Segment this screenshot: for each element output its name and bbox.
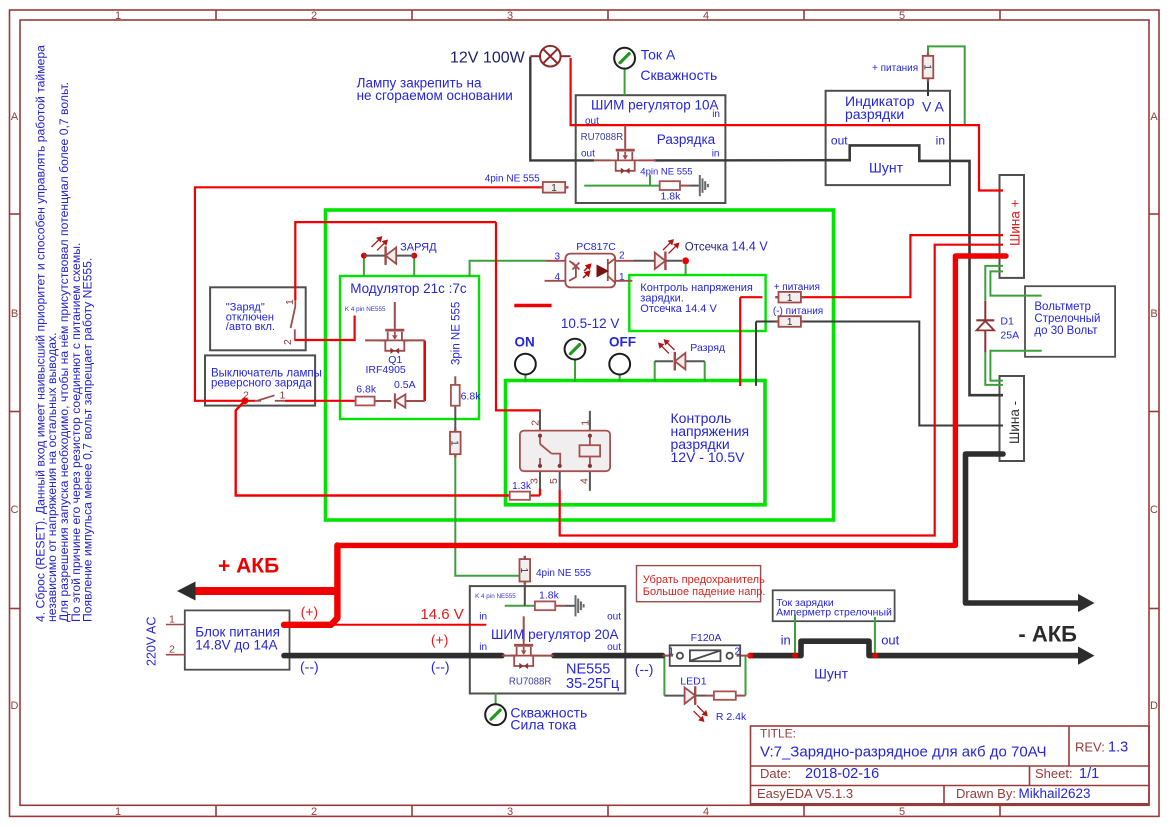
svg-text:Модулятор 21c :7c: Модулятор 21c :7c [350, 281, 467, 296]
svg-text:F120A: F120A [691, 632, 722, 644]
svg-text:12V 100W: 12V 100W [450, 50, 526, 67]
svg-text:in: in [479, 612, 487, 623]
svg-text:2: 2 [169, 644, 175, 656]
svg-text:реверсного заряда: реверсного заряда [211, 378, 312, 390]
svg-text:4pin NE 555: 4pin NE 555 [640, 166, 692, 177]
svg-text:12V - 10.5V: 12V - 10.5V [671, 449, 746, 465]
svg-text:V:7_Зарядно-разрядное для акб: V:7_Зарядно-разрядное для акб до 70АЧ [760, 743, 1047, 760]
svg-text:+ питания: + питания [774, 282, 820, 293]
svg-text:+ питания: + питания [872, 63, 918, 74]
svg-text:1: 1 [580, 420, 592, 426]
svg-text:TITLE:: TITLE: [760, 727, 796, 741]
svg-text:Ток А: Ток А [641, 47, 676, 63]
svg-text:D1: D1 [1000, 316, 1014, 328]
svg-text:25A: 25A [1000, 330, 1019, 342]
svg-text:3pin NE 555: 3pin NE 555 [450, 302, 462, 365]
svg-text:1.3k: 1.3k [512, 481, 532, 492]
svg-text:2: 2 [243, 389, 249, 401]
svg-text:ШИМ регулятор 10А: ШИМ регулятор 10А [591, 98, 718, 113]
svg-text:(-) питания: (-) питания [773, 306, 823, 317]
svg-text:1: 1 [169, 614, 175, 626]
svg-text:2: 2 [735, 646, 741, 657]
svg-text:4: 4 [555, 272, 561, 283]
svg-text:Шунт: Шунт [814, 665, 849, 681]
svg-text:(+): (+) [431, 632, 449, 648]
svg-text:Разрядка: Разрядка [657, 132, 716, 147]
svg-text:B: B [11, 308, 18, 320]
svg-text:1: 1 [619, 272, 625, 283]
svg-text:out: out [581, 149, 595, 160]
svg-text:B: B [1150, 308, 1157, 320]
svg-text:out: out [585, 116, 599, 127]
svg-text:Стрелочный: Стрелочный [1034, 313, 1100, 325]
svg-text:220V AC: 220V AC [145, 617, 159, 666]
svg-text:1.8k: 1.8k [661, 191, 682, 203]
svg-text:REV:: REV: [1075, 740, 1105, 755]
svg-text:in: in [781, 633, 791, 648]
svg-text:1: 1 [280, 389, 286, 401]
svg-text:Шина -: Шина - [1007, 401, 1022, 444]
svg-text:не сгораемом основании: не сгораемом основании [357, 88, 513, 103]
svg-text:ШИМ регулятор 20А: ШИМ регулятор 20А [491, 627, 618, 642]
svg-text:5: 5 [899, 806, 905, 818]
svg-text:Шунт: Шунт [869, 160, 904, 176]
svg-text:Отсечка 14.4 V: Отсечка 14.4 V [685, 240, 769, 254]
svg-text:Drawn By:: Drawn By: [956, 786, 1016, 801]
svg-text:Убрать предохранитель: Убрать предохранитель [643, 574, 765, 586]
svg-text:Date:: Date: [760, 766, 791, 781]
svg-text:6.8k: 6.8k [461, 390, 482, 402]
svg-text:C: C [11, 504, 19, 516]
svg-text:out: out [607, 642, 621, 653]
svg-text:OFF: OFF [609, 334, 636, 349]
svg-text:4pin NE 555: 4pin NE 555 [536, 568, 591, 579]
svg-text:K 4 pin NE555: K 4 pin NE555 [475, 593, 516, 600]
svg-text:in: in [479, 642, 487, 653]
svg-text:Появление импульса менее 0,7 в: Появление импульса менее 0,7 вольт запре… [81, 258, 95, 622]
svg-text:до 30 Вольт: до 30 Вольт [1034, 325, 1098, 337]
svg-text:R 2.4k: R 2.4k [716, 711, 747, 723]
svg-text:2018-02-16: 2018-02-16 [805, 766, 879, 782]
svg-text:2: 2 [530, 420, 542, 426]
svg-text:ON: ON [515, 334, 535, 349]
svg-text:K 4 pin NE555: K 4 pin NE555 [345, 306, 386, 313]
svg-text:3: 3 [507, 806, 513, 818]
svg-text:1: 1 [115, 806, 121, 818]
svg-text:in: in [712, 109, 720, 120]
svg-text:1.8k: 1.8k [539, 590, 560, 602]
svg-text:Скважность: Скважность [640, 67, 717, 83]
svg-text:(+): (+) [301, 604, 319, 620]
svg-text:1/1: 1/1 [1079, 766, 1099, 782]
svg-text:14.8V до 14А: 14.8V до 14А [195, 638, 277, 653]
svg-text:LED1: LED1 [680, 675, 706, 687]
svg-text:/авто вкл.: /авто вкл. [226, 321, 275, 333]
svg-text:0.5A: 0.5A [394, 379, 416, 391]
svg-text:PC817C: PC817C [576, 241, 616, 253]
svg-text:5: 5 [899, 10, 905, 22]
svg-text:5: 5 [548, 478, 560, 484]
svg-text:1: 1 [284, 299, 296, 305]
svg-text:6.8k: 6.8k [356, 384, 377, 396]
svg-text:4: 4 [579, 478, 591, 484]
svg-text:4pin NE 555: 4pin NE 555 [485, 174, 540, 185]
svg-text:Разряд: Разряд [690, 342, 725, 354]
svg-text:Большое падение напр.: Большое падение напр. [643, 586, 766, 598]
svg-text:1.3: 1.3 [1108, 740, 1128, 756]
svg-text:Отсечка 14.4 V: Отсечка 14.4 V [640, 303, 717, 315]
svg-text:4: 4 [703, 10, 709, 22]
svg-text:(--): (--) [300, 659, 319, 675]
svg-text:D: D [11, 700, 19, 712]
svg-text:V A: V A [922, 99, 944, 115]
svg-text:ЗАРЯД: ЗАРЯД [400, 242, 437, 254]
svg-text:35-25Гц: 35-25Гц [566, 676, 619, 692]
svg-text:Шина +: Шина + [1008, 199, 1023, 246]
svg-text:- АКБ: - АКБ [1018, 622, 1077, 647]
svg-text:in: in [936, 134, 945, 148]
svg-text:(--): (--) [635, 661, 654, 677]
svg-text:C: C [1150, 504, 1158, 516]
svg-text:Sheet:: Sheet: [1035, 766, 1073, 781]
svg-text:out: out [607, 612, 621, 623]
svg-text:D: D [1150, 700, 1158, 712]
svg-text:RU7088R: RU7088R [509, 676, 552, 687]
svg-text:10.5-12 V: 10.5-12 V [561, 316, 620, 331]
svg-text:разрядки: разрядки [845, 106, 904, 122]
svg-text:14.6 V: 14.6 V [420, 606, 463, 623]
svg-text:NE555: NE555 [566, 661, 610, 677]
svg-text:RU7088R: RU7088R [581, 132, 624, 143]
svg-text:+ АКБ: + АКБ [218, 555, 279, 578]
svg-text:1: 1 [669, 646, 675, 657]
svg-text:out: out [881, 633, 899, 648]
svg-text:Mikhail2623: Mikhail2623 [1019, 786, 1091, 801]
svg-text:EasyEDA V5.1.3: EasyEDA V5.1.3 [757, 786, 853, 801]
svg-text:Вольтметр: Вольтметр [1034, 301, 1090, 313]
svg-text:A: A [11, 111, 19, 123]
svg-text:A: A [1150, 111, 1158, 123]
svg-text:IRF4905: IRF4905 [366, 364, 406, 376]
svg-text:4: 4 [703, 806, 709, 818]
svg-text:1: 1 [115, 10, 121, 22]
svg-text:Сила тока: Сила тока [510, 717, 576, 733]
svg-text:2: 2 [619, 251, 625, 262]
svg-text:3: 3 [555, 252, 561, 263]
svg-text:2: 2 [311, 10, 317, 22]
svg-text:in: in [712, 149, 720, 160]
svg-text:Амперметр стрелочный: Амперметр стрелочный [776, 606, 892, 618]
svg-text:2: 2 [282, 339, 294, 345]
svg-text:2: 2 [311, 806, 317, 818]
svg-text:out: out [831, 134, 848, 148]
svg-text:3: 3 [507, 10, 513, 22]
svg-text:(--): (--) [431, 659, 450, 675]
